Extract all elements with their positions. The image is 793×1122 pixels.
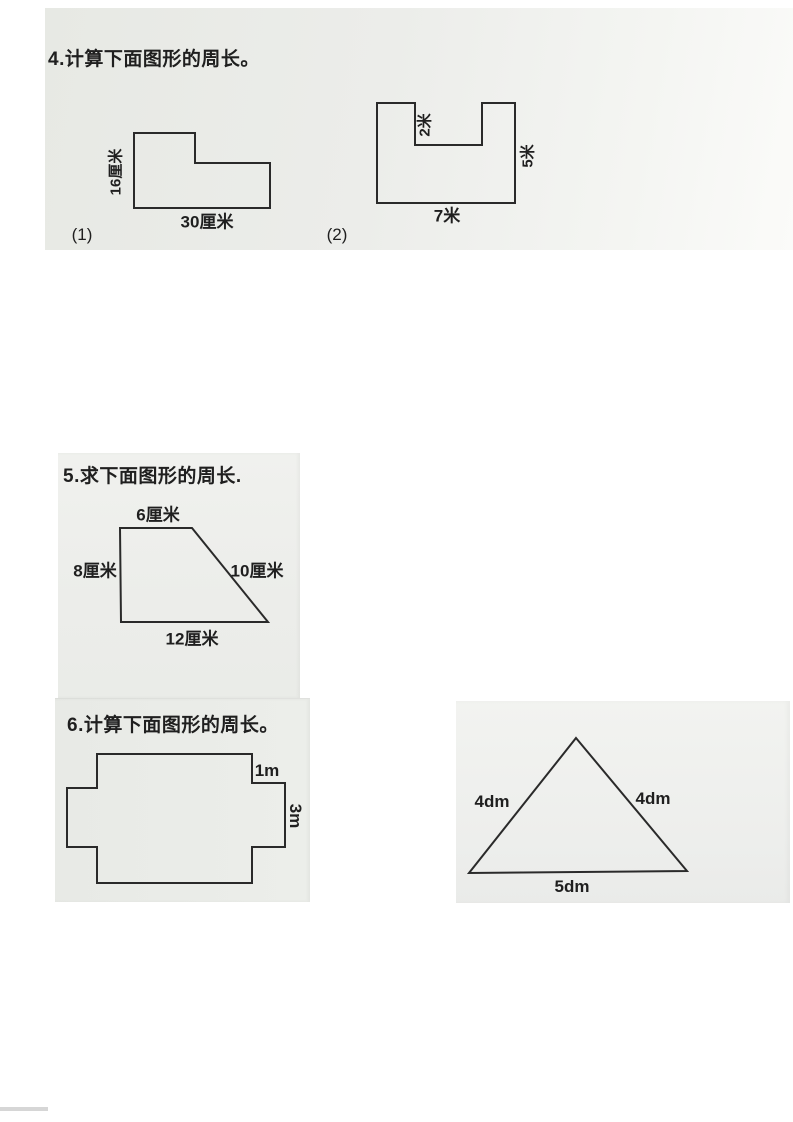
fig1-bottom-dimension: 30厘米	[181, 208, 234, 233]
cross-step-dimension: 1m	[255, 761, 280, 781]
fig2-notch-dimension: 2米	[414, 113, 435, 136]
fig1-caption: (1)	[72, 225, 93, 245]
triangle-bottom-dimension: 5dm	[555, 877, 590, 897]
trapezoid-bottom-dimension: 12厘米	[166, 625, 219, 650]
triangle-right-dimension: 4dm	[636, 789, 671, 809]
problem4-title: 4.计算下面图形的周长。	[48, 44, 260, 71]
trapezoid-right-dimension: 10厘米	[231, 557, 284, 582]
worksheet-page: 4.计算下面图形的周长。 16厘米 30厘米 (1) 2米 5米 7米 (2) …	[0, 0, 793, 1122]
problem6-title: 6.计算下面图形的周长。	[67, 710, 279, 737]
fig2-right-dimension: 5米	[517, 144, 538, 167]
cross-right-dimension: 3m	[285, 804, 305, 829]
fig2-caption: (2)	[327, 225, 348, 245]
fig2-bottom-dimension: 7米	[434, 202, 460, 227]
fig1-left-dimension: 16厘米	[105, 149, 126, 196]
trapezoid-top-dimension: 6厘米	[136, 501, 179, 526]
scan-artifact-bar	[0, 1107, 48, 1111]
trapezoid-left-dimension: 8厘米	[73, 557, 116, 582]
triangle-left-dimension: 4dm	[475, 792, 510, 812]
problem5-title: 5.求下面图形的周长.	[63, 461, 242, 488]
